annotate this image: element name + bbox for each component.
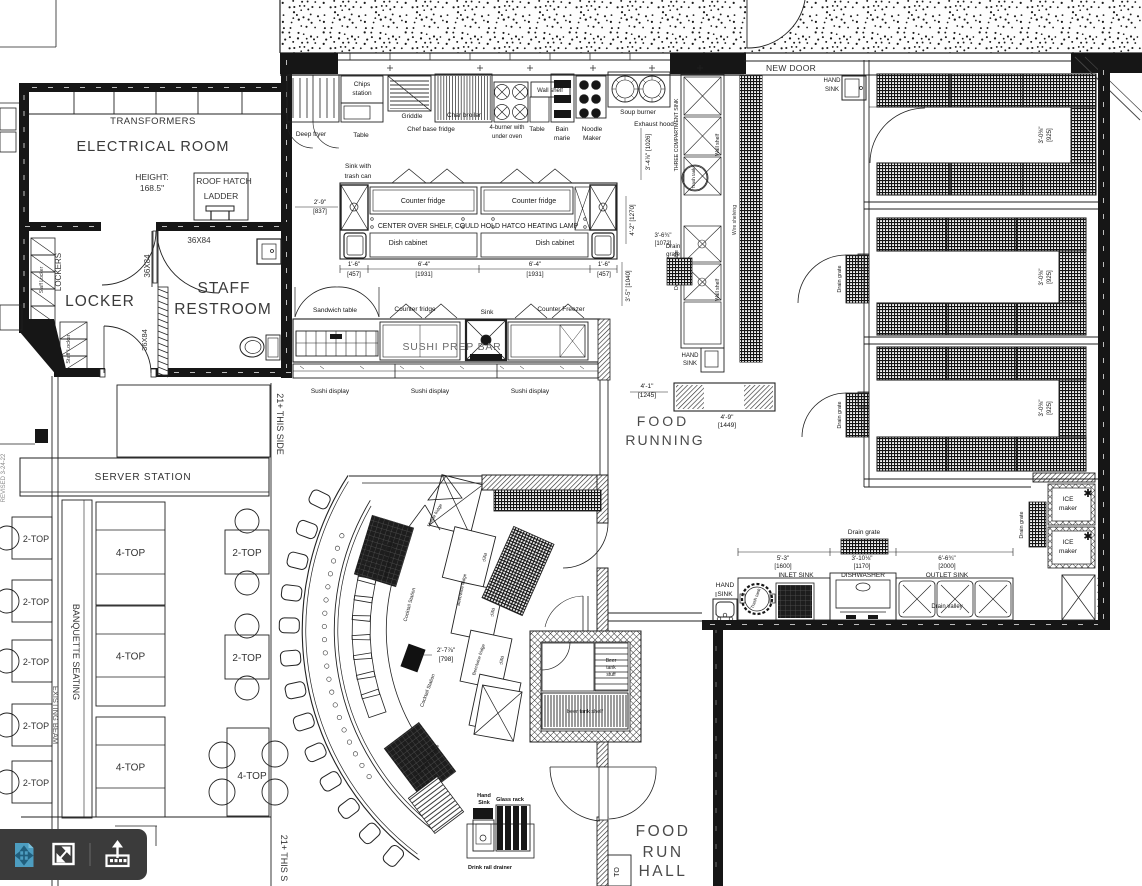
svg-text:RESTROOM: RESTROOM [174, 301, 272, 318]
svg-text:Bain: Bain [555, 126, 568, 133]
svg-text:Noodle: Noodle [582, 126, 603, 133]
svg-text:Drain grate: Drain grate [848, 529, 881, 536]
svg-text:station: station [352, 90, 372, 97]
svg-text:3'-0⅜": 3'-0⅜" [1039, 127, 1045, 144]
svg-text:Sink: Sink [481, 309, 494, 316]
svg-text:Exhaust hood: Exhaust hood [634, 121, 674, 128]
svg-text:2'-9": 2'-9" [314, 199, 326, 206]
svg-text:Staff Locker: Staff Locker [39, 266, 45, 293]
svg-text:Dish cabinet: Dish cabinet [389, 240, 428, 247]
svg-text:[925]: [925] [1047, 401, 1053, 415]
svg-text:Counter fridge: Counter fridge [401, 198, 445, 205]
svg-text:trash can: trash can [345, 173, 372, 180]
svg-text:Drain grate: Drain grate [837, 265, 843, 292]
svg-text:TRANSFORMERS: TRANSFORMERS [110, 116, 196, 127]
svg-text:Deep fryer: Deep fryer [296, 131, 327, 138]
svg-text:[1245]: [1245] [638, 392, 656, 399]
svg-text:✱: ✱ [1083, 488, 1092, 500]
svg-text:Counter fridge: Counter fridge [512, 198, 556, 205]
svg-text:Maker: Maker [583, 135, 602, 142]
svg-text:Staff Locker: Staff Locker [66, 334, 72, 363]
svg-text:36X84: 36X84 [187, 236, 211, 245]
svg-text:Wall shelf: Wall shelf [715, 133, 721, 156]
svg-text:Dish cabinet: Dish cabinet [536, 240, 575, 247]
svg-text:LADDER: LADDER [204, 191, 238, 201]
svg-text:168.5": 168.5" [140, 183, 164, 193]
svg-text:2-TOP: 2-TOP [232, 653, 262, 664]
svg-text:CENTER OVER SHELF, COULD HOLD: CENTER OVER SHELF, COULD HOLD HATCO HEAT… [378, 223, 579, 230]
svg-text:6'-6¾": 6'-6¾" [938, 555, 955, 562]
svg-text:Wire shelving: Wire shelving [732, 205, 738, 235]
svg-text:FOOD: FOOD [636, 823, 691, 840]
svg-text:[1072]: [1072] [655, 241, 672, 247]
svg-text:[1449]: [1449] [718, 422, 736, 429]
svg-text:4-TOP: 4-TOP [116, 652, 146, 663]
svg-text:RUN: RUN [642, 844, 683, 861]
svg-text:4'-9": 4'-9" [721, 414, 735, 421]
svg-text:SINK: SINK [717, 591, 733, 598]
svg-text:Drink rail drainer: Drink rail drainer [468, 865, 513, 871]
svg-text:NEW DOOR: NEW DOOR [766, 63, 816, 73]
svg-text:Table: Table [353, 132, 369, 139]
svg-text:2-TOP: 2-TOP [23, 534, 49, 544]
svg-text:[1931]: [1931] [415, 271, 432, 278]
svg-text:HALL: HALL [639, 863, 688, 880]
svg-text:2'-7⅞": 2'-7⅞" [437, 647, 456, 654]
svg-text:21+ THIS S: 21+ THIS S [279, 835, 289, 882]
svg-text:marie: marie [554, 135, 571, 142]
svg-text:Soup burner: Soup burner [620, 109, 657, 116]
svg-text:Sandwich table: Sandwich table [313, 307, 357, 314]
svg-text:Drain grate: Drain grate [837, 401, 843, 428]
svg-text:1'-6": 1'-6" [348, 261, 360, 268]
svg-text:stuff: stuff [606, 672, 616, 678]
svg-text:3'-5" [1040]: 3'-5" [1040] [625, 270, 632, 302]
svg-text:✱: ✱ [1083, 531, 1092, 543]
svg-text:36X84: 36X84 [143, 254, 152, 278]
svg-text:[1170]: [1170] [854, 563, 871, 570]
svg-text:Char broiler: Char broiler [447, 112, 482, 119]
svg-text:5'-3": 5'-3" [777, 555, 789, 562]
svg-text:SERVER STATION: SERVER STATION [95, 472, 192, 483]
svg-text:[457]: [457] [347, 271, 361, 278]
svg-text:SINK: SINK [825, 87, 839, 93]
svg-text:Griddle: Griddle [402, 113, 423, 120]
svg-text:3'-4⅞" [1026]: 3'-4⅞" [1026] [645, 134, 652, 171]
svg-text:BANQUETTE SEATING: BANQUETTE SEATING [71, 604, 81, 700]
svg-text:Wall shelf: Wall shelf [715, 278, 721, 301]
svg-text:[457]: [457] [597, 271, 611, 278]
svg-text:SUSHI PREP BAR: SUSHI PREP BAR [402, 341, 501, 353]
svg-text:4'-2" [1270]: 4'-2" [1270] [629, 204, 636, 236]
svg-text:ROOF HATCH: ROOF HATCH [196, 176, 252, 186]
svg-text:Sushi display: Sushi display [311, 388, 350, 395]
svg-text:Sushi display: Sushi display [411, 388, 450, 395]
svg-text:[925]: [925] [1047, 270, 1053, 284]
svg-text:Trash tank: Trash tank [691, 167, 696, 189]
svg-text:maker: maker [1059, 548, 1078, 555]
svg-text:3'-0⅜": 3'-0⅜" [1039, 400, 1045, 417]
svg-text:LOCKER: LOCKER [65, 293, 135, 310]
svg-text:ICE: ICE [1063, 539, 1075, 546]
svg-text:[1931]: [1931] [526, 271, 543, 278]
svg-text:Sink with: Sink with [345, 163, 371, 170]
svg-text:HAND: HAND [823, 78, 841, 84]
svg-text:2-TOP: 2-TOP [23, 597, 49, 607]
svg-text:4-TOP: 4-TOP [237, 771, 267, 782]
svg-text:STAFF: STAFF [198, 280, 251, 297]
svg-text:under oven: under oven [492, 134, 522, 140]
svg-text:ELECTRICAL ROOM: ELECTRICAL ROOM [76, 139, 229, 155]
svg-text:HEIGHT:: HEIGHT: [135, 172, 169, 182]
svg-text:2-TOP: 2-TOP [23, 721, 49, 731]
svg-text:THREE COMPARTMENT SINK: THREE COMPARTMENT SINK [674, 98, 680, 171]
svg-text:[925]: [925] [1047, 128, 1053, 142]
svg-text:Chips: Chips [354, 81, 371, 88]
svg-text:3'-6¾": 3'-6¾" [655, 233, 672, 239]
svg-text:2-TOP: 2-TOP [23, 657, 49, 667]
svg-text:Sushi display: Sushi display [511, 388, 550, 395]
svg-text:1'-6": 1'-6" [598, 261, 610, 268]
svg-text:FOOD: FOOD [637, 413, 689, 429]
svg-text:Drain valley: Drain valley [931, 604, 962, 610]
svg-text:Table: Table [529, 126, 545, 133]
svg-text:2-TOP: 2-TOP [23, 778, 49, 788]
svg-text:3'-10⅛": 3'-10⅛" [852, 555, 873, 562]
svg-text:maker: maker [1059, 505, 1078, 512]
svg-text:Chef base fridge: Chef base fridge [407, 126, 455, 133]
svg-text:LOCKERS: LOCKERS [54, 253, 63, 291]
svg-text:HAND: HAND [681, 353, 699, 359]
svg-text:4-TOP: 4-TOP [116, 763, 146, 774]
svg-text:3'-0⅜": 3'-0⅜" [1039, 269, 1045, 286]
svg-text:SINK: SINK [683, 361, 697, 367]
svg-text:ICE: ICE [1063, 496, 1075, 503]
svg-text:6'-4": 6'-4" [418, 261, 430, 268]
svg-text:HAND: HAND [716, 582, 735, 589]
svg-text:[798]: [798] [439, 656, 454, 663]
svg-text:[837]: [837] [313, 208, 327, 215]
svg-text:Hand: Hand [477, 793, 491, 799]
svg-text:Beer: Beer [606, 658, 617, 664]
svg-text:6'-4": 6'-4" [529, 261, 541, 268]
svg-text:Glass rack: Glass rack [496, 797, 525, 803]
svg-text:4'-1": 4'-1" [641, 383, 655, 390]
svg-text:RUNNING: RUNNING [625, 432, 704, 448]
svg-text:21+ THIS SIDE: 21+ THIS SIDE [275, 393, 285, 455]
svg-text:[1600]: [1600] [774, 563, 791, 570]
svg-text:4-burner with: 4-burner with [489, 125, 524, 131]
svg-text:Wall shelf: Wall shelf [537, 88, 563, 94]
svg-text:TO: TO [614, 867, 621, 877]
svg-text:grate: grate [666, 252, 680, 258]
svg-text:Drain grate: Drain grate [1019, 511, 1025, 538]
svg-text:2-TOP: 2-TOP [232, 548, 262, 559]
svg-text:beer tank shelf: beer tank shelf [567, 709, 604, 715]
svg-text:Sink: Sink [478, 800, 491, 806]
svg-text:36X84: 36X84 [140, 329, 149, 351]
svg-text:tank: tank [606, 665, 616, 671]
svg-text:REVISED 3-24-22: REVISED 3-24-22 [1, 453, 7, 502]
svg-text:[2000]: [2000] [938, 563, 955, 570]
svg-text:4-TOP: 4-TOP [116, 548, 146, 559]
